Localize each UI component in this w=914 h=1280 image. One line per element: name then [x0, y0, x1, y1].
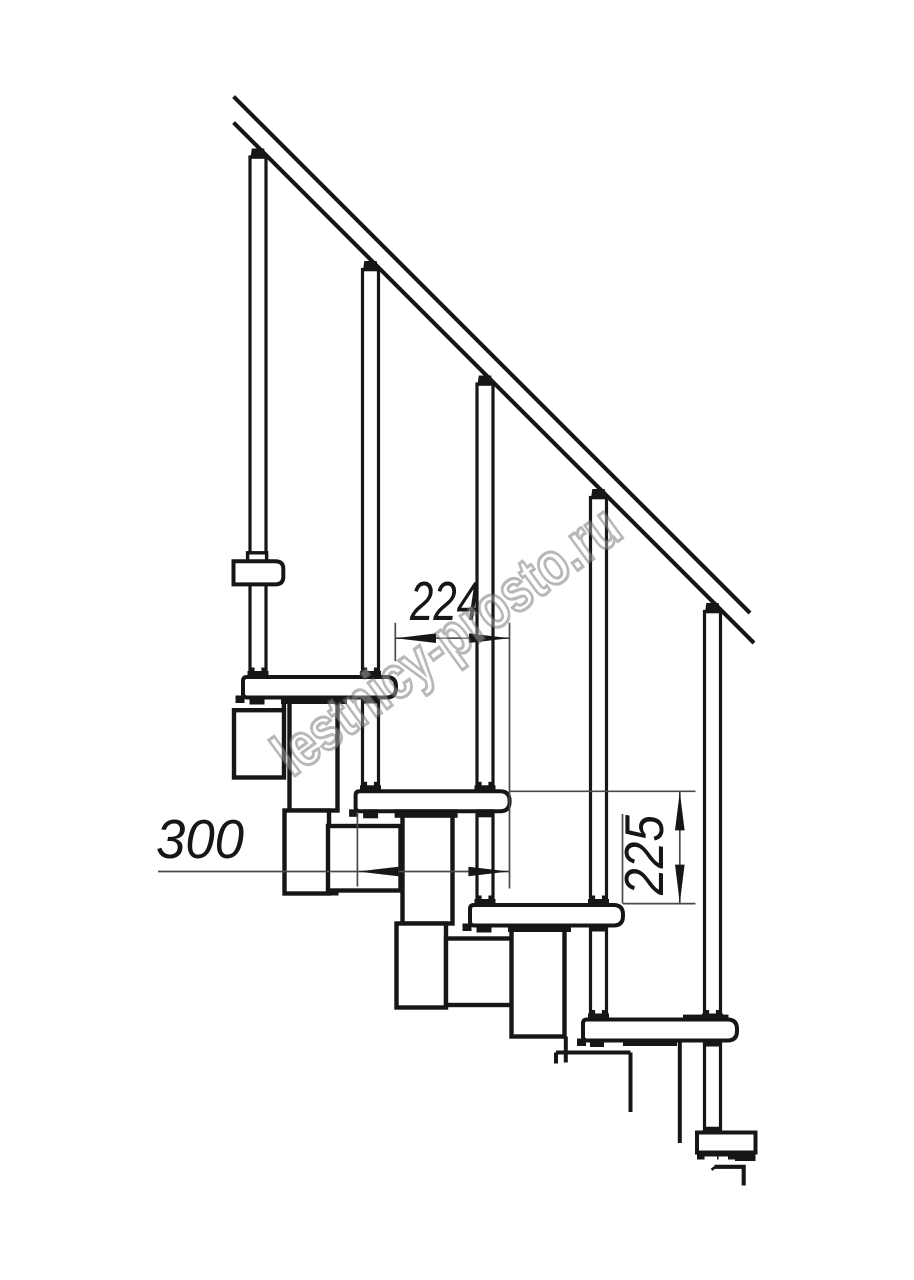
svg-text:225: 225 — [613, 815, 675, 896]
svg-text:300: 300 — [156, 808, 244, 870]
